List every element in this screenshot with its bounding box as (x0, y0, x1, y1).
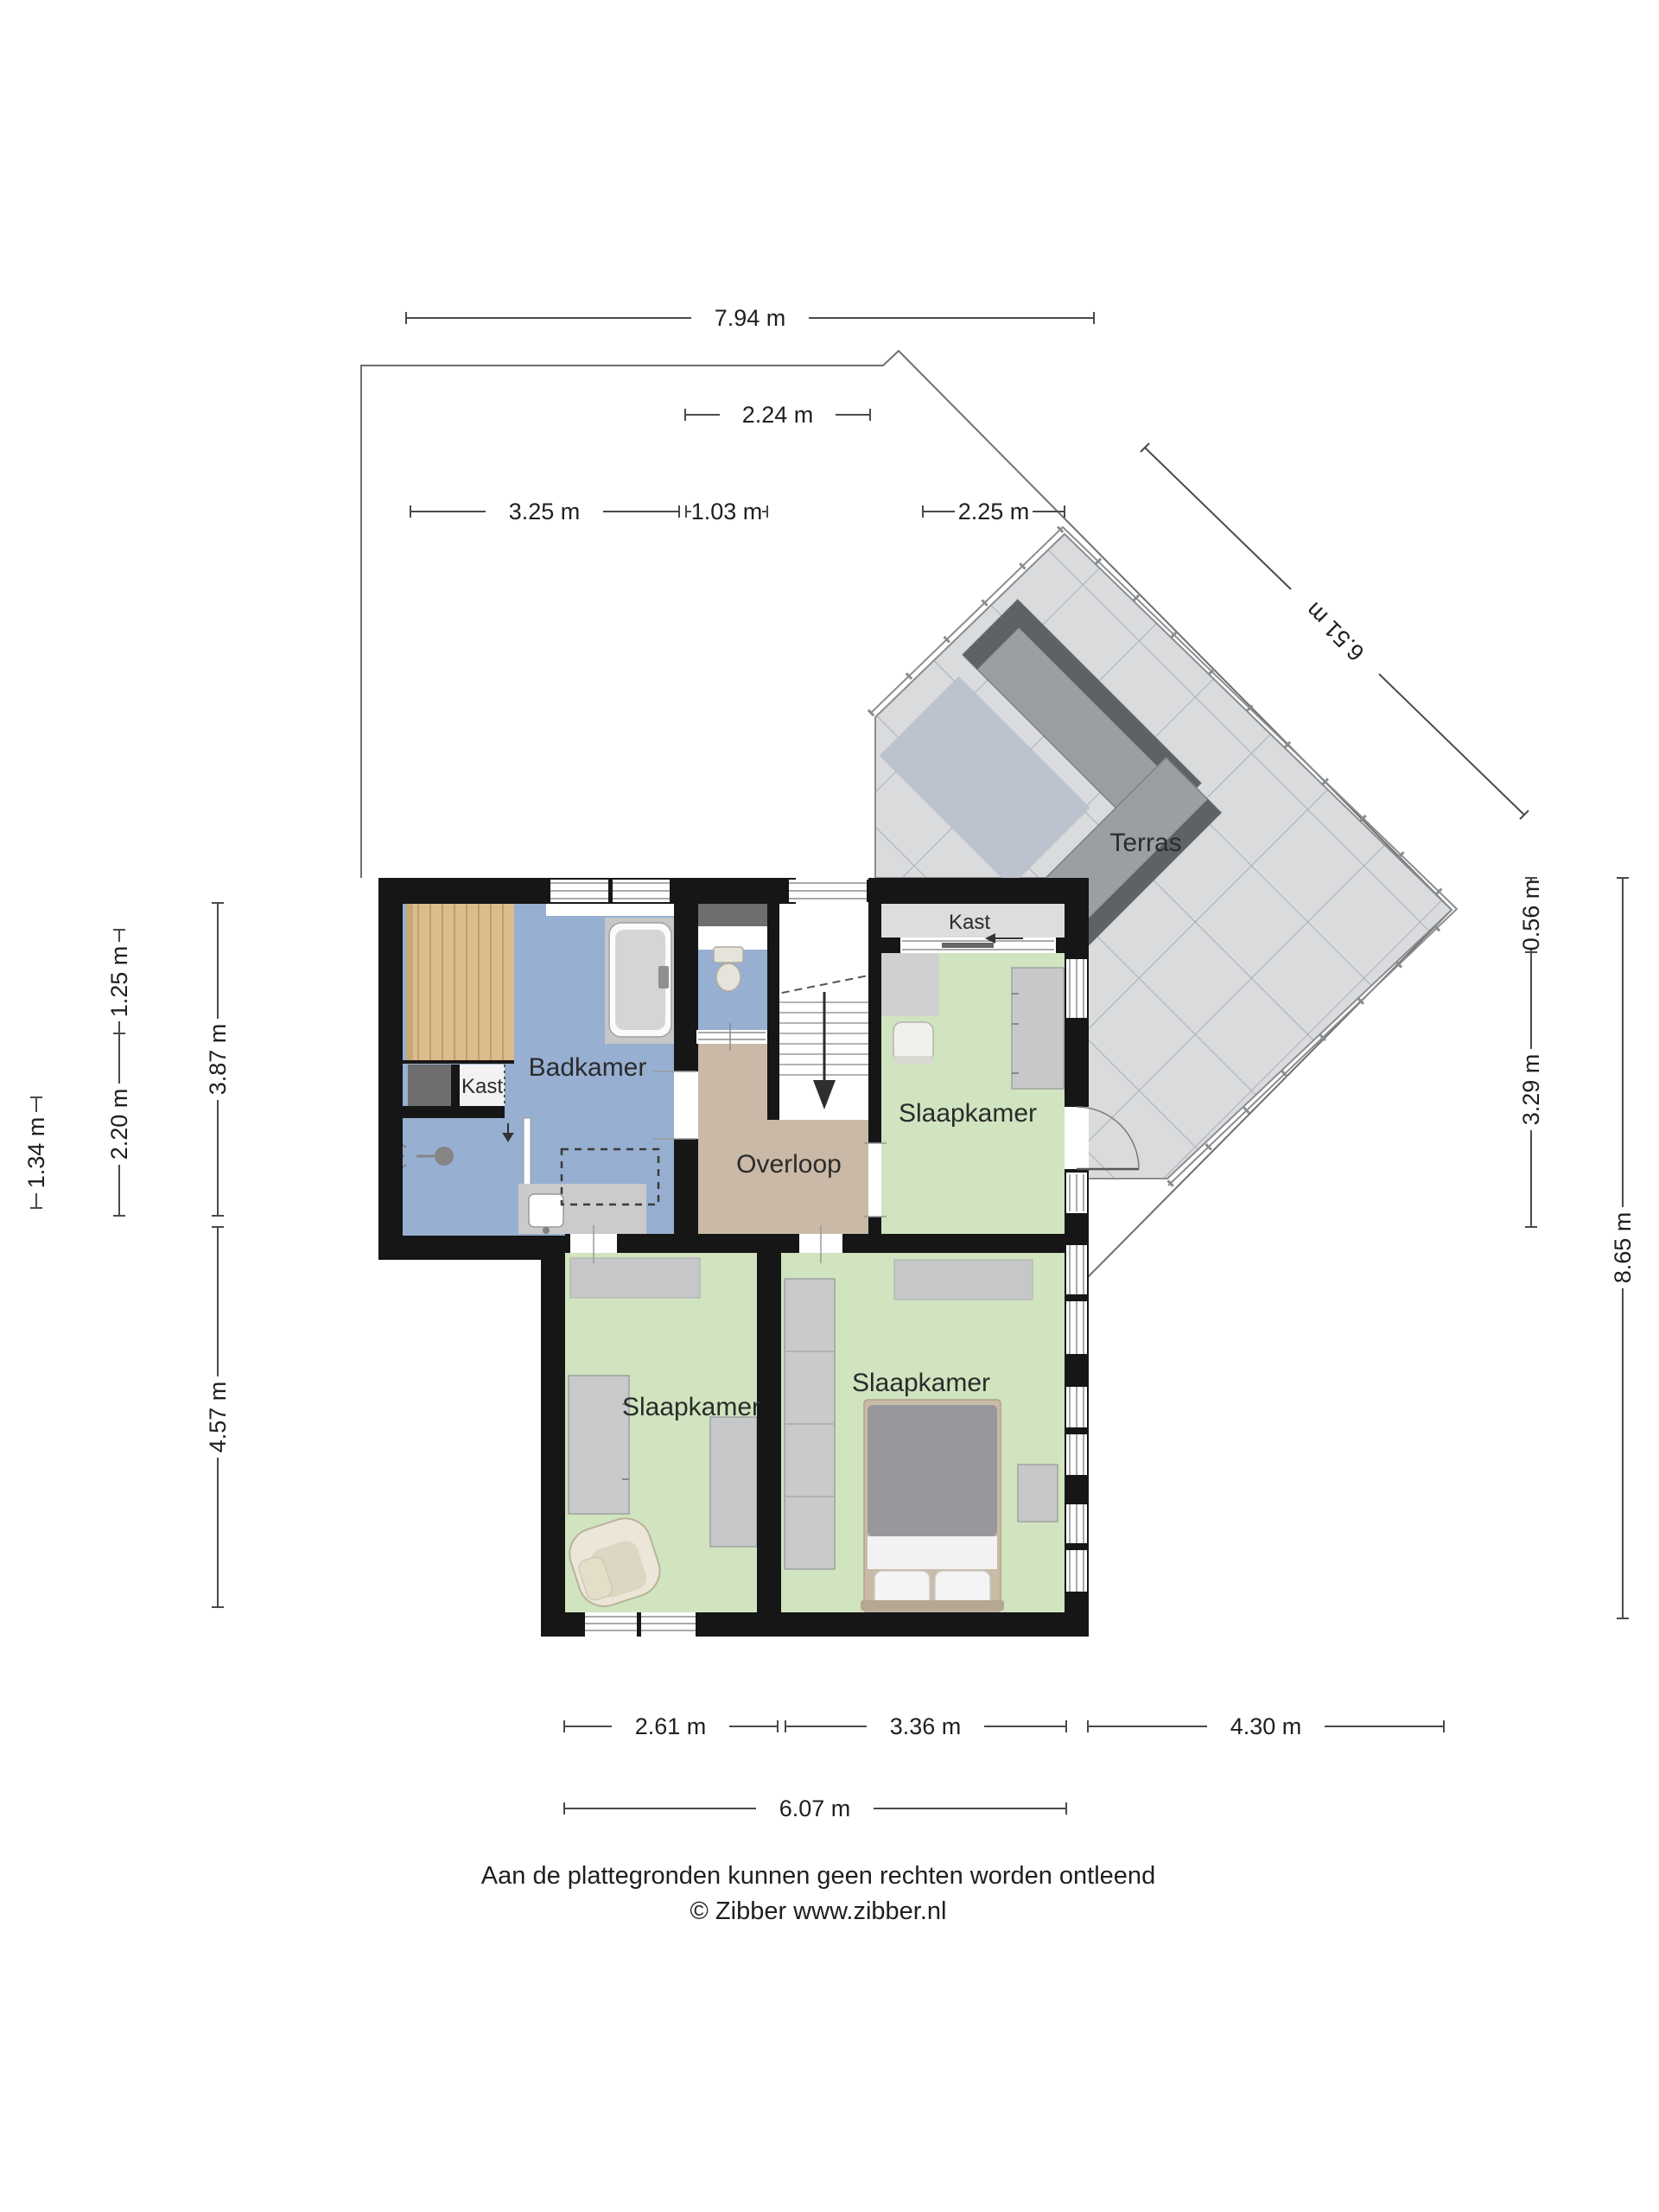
dim-top-seg2: 1.03 m (691, 499, 763, 524)
window-bottom (580, 1612, 701, 1637)
label-terras: Terras (1109, 829, 1181, 857)
dim-right-a: 0.56 m (1518, 880, 1544, 951)
window-upper-bedroom (1066, 955, 1087, 1022)
closet-block (881, 953, 939, 1016)
dim-left-e: 4.57 m (205, 1382, 231, 1453)
sink-faucet-icon (543, 1227, 550, 1234)
toilet-sill (698, 926, 767, 950)
label-slaapkamer-right: Slaapkamer (852, 1369, 990, 1397)
window-stairwell (785, 880, 871, 902)
label-kast-badkamer: Kast (461, 1075, 503, 1098)
side-cabinet (1018, 1465, 1058, 1522)
dim-top-seg3: 2.25 m (958, 499, 1030, 524)
dim-diag: 6.51 m (1300, 597, 1370, 666)
footer-copyright: © Zibber www.zibber.nl (690, 1897, 947, 1925)
toilet-icon (714, 947, 743, 991)
dim-top-block: 2.24 m (742, 402, 814, 428)
floorplan-page: Terras Kast Slaapkamer Badkamer Kast Ove… (0, 0, 1659, 2212)
sink (518, 1184, 646, 1234)
window-right-1 (1066, 1241, 1087, 1358)
shower-head-icon (435, 1147, 454, 1166)
label-badkamer: Badkamer (529, 1053, 647, 1082)
footer-disclaimer: Aan de plattegronden kunnen geen rechten… (481, 1862, 1155, 1890)
wardrobe (1012, 968, 1064, 1089)
dim-top-total: 7.94 m (715, 305, 786, 331)
desk (894, 1260, 1033, 1300)
white-sill-top-window (546, 904, 674, 916)
window-right-2 (1066, 1382, 1087, 1479)
label-slaapkamer-upper: Slaapkamer (899, 1099, 1037, 1128)
label-kast-upper: Kast (949, 911, 990, 934)
desk (570, 1258, 700, 1298)
dim-bottom-b: 3.36 m (890, 1713, 962, 1739)
staircase (769, 878, 873, 1120)
window-top (546, 880, 674, 902)
window-terrace-side (1066, 1173, 1087, 1213)
dim-right-b: 3.29 m (1518, 1054, 1544, 1126)
floorplan-drawing: Terras Kast Slaapkamer Badkamer Kast Ove… (0, 0, 1659, 2212)
label-slaapkamer-left: Slaapkamer (622, 1393, 760, 1421)
sauna (406, 904, 514, 1060)
bathtub (605, 918, 676, 1044)
dim-bottom-total: 6.07 m (779, 1796, 851, 1821)
sliding-door-kast-upper (881, 938, 1065, 953)
bathtub-faucet-icon (658, 966, 669, 988)
dim-left-d: 1.34 m (23, 1117, 49, 1189)
dim-right-c: 8.65 m (1610, 1212, 1636, 1284)
wardrobe (569, 1376, 629, 1514)
dim-bottom-c: 4.30 m (1230, 1713, 1302, 1739)
side-cabinet (710, 1417, 757, 1547)
double-bed (861, 1400, 1004, 1612)
dim-top-seg1: 3.25 m (509, 499, 581, 524)
dim-left-b: 2.20 m (106, 1089, 132, 1160)
dim-left-a: 1.25 m (106, 946, 132, 1018)
label-overloop: Overloop (736, 1150, 842, 1179)
dim-left-c: 3.87 m (205, 1024, 231, 1096)
bath-dark-cabinet (408, 1065, 451, 1106)
window-right-3 (1066, 1500, 1087, 1596)
dim-bottom-a: 2.61 m (635, 1713, 707, 1739)
